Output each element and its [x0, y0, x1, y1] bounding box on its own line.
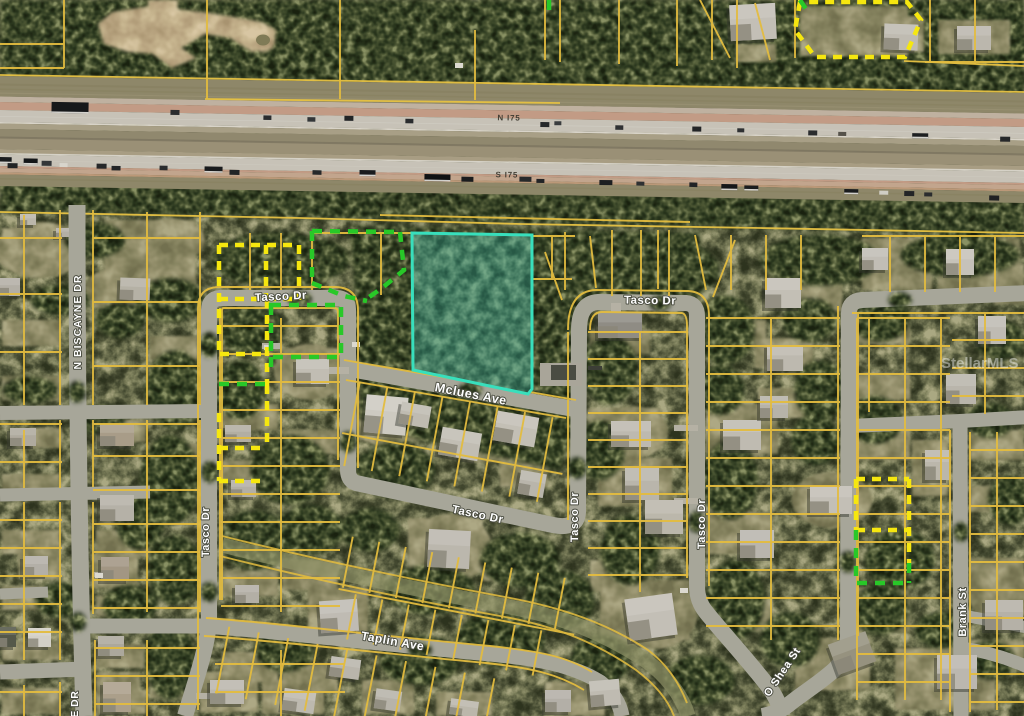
svg-text:YNE DR: YNE DR: [69, 691, 81, 716]
svg-text:N BISCAYNE DR: N BISCAYNE DR: [72, 275, 84, 370]
svg-text:Tasco Dr: Tasco Dr: [696, 499, 708, 549]
svg-text:N I75: N I75: [497, 113, 520, 122]
svg-text:StellarMLS: StellarMLS: [941, 355, 1019, 372]
svg-text:Tasco Dr: Tasco Dr: [569, 492, 581, 542]
svg-text:Tasco Dr: Tasco Dr: [200, 507, 212, 557]
svg-text:S I75: S I75: [495, 170, 518, 179]
svg-text:Tasco Dr: Tasco Dr: [624, 295, 677, 308]
svg-text:Brank St: Brank St: [957, 587, 969, 636]
